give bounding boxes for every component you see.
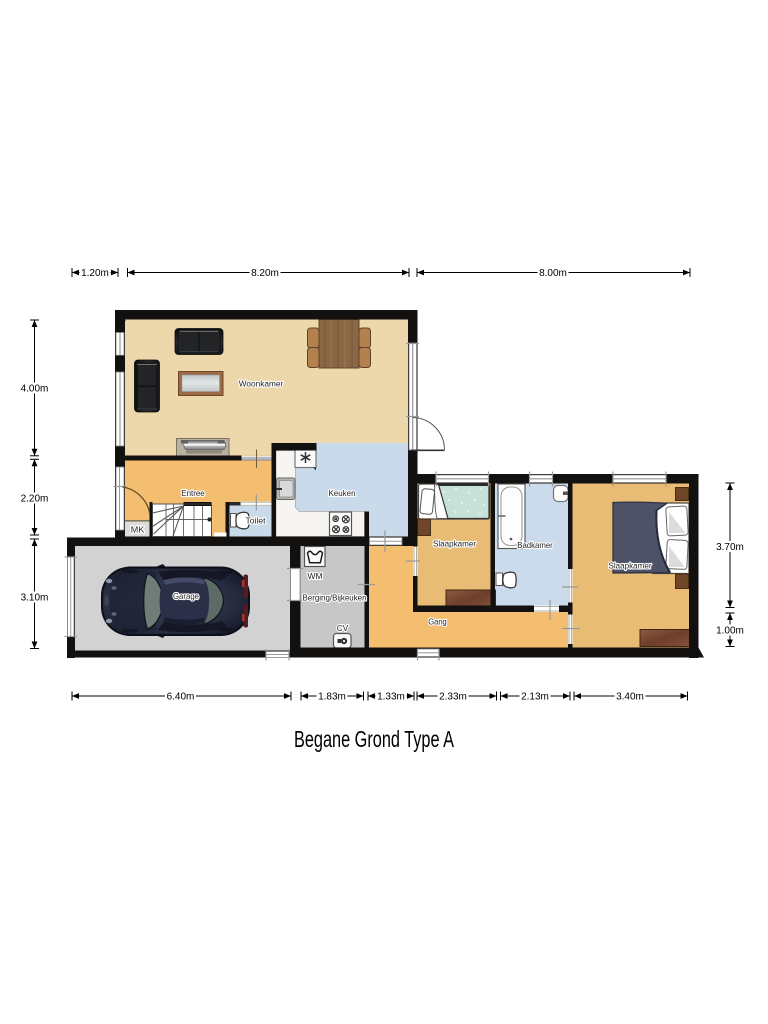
svg-text:Slaapkamer: Slaapkamer [433, 539, 476, 549]
svg-text:2.33m: 2.33m [439, 692, 467, 703]
svg-text:WM: WM [308, 571, 323, 581]
svg-text:1.33m: 1.33m [377, 692, 405, 703]
svg-text:8.20m: 8.20m [251, 268, 279, 279]
svg-text:Berging/Bijkeuken: Berging/Bijkeuken [303, 593, 367, 603]
svg-text:4.00m: 4.00m [21, 384, 49, 395]
svg-text:CV: CV [337, 623, 349, 633]
svg-text:Badkamer: Badkamer [517, 540, 553, 550]
svg-text:Garage: Garage [173, 591, 199, 601]
svg-text:8.00m: 8.00m [539, 268, 567, 279]
svg-text:3.40m: 3.40m [616, 692, 644, 703]
svg-text:Entree: Entree [181, 488, 205, 498]
svg-text:Woonkamer: Woonkamer [239, 379, 284, 389]
svg-text:1.00m: 1.00m [716, 626, 744, 637]
svg-text:Gang: Gang [428, 617, 447, 627]
svg-text:Toilet: Toilet [246, 516, 267, 526]
svg-text:Keuken: Keuken [329, 488, 356, 498]
svg-text:3.70m: 3.70m [716, 542, 744, 553]
svg-text:6.40m: 6.40m [167, 692, 195, 703]
svg-text:MK: MK [131, 525, 145, 535]
svg-text:Slaapkamer: Slaapkamer [609, 561, 652, 571]
svg-text:3.10m: 3.10m [21, 593, 49, 604]
svg-text:1.20m: 1.20m [81, 268, 109, 279]
svg-text:2.20m: 2.20m [21, 494, 49, 505]
svg-text:Begane Grond Type A: Begane Grond Type A [294, 726, 454, 752]
svg-text:1.83m: 1.83m [318, 692, 346, 703]
svg-text:2.13m: 2.13m [521, 692, 549, 703]
